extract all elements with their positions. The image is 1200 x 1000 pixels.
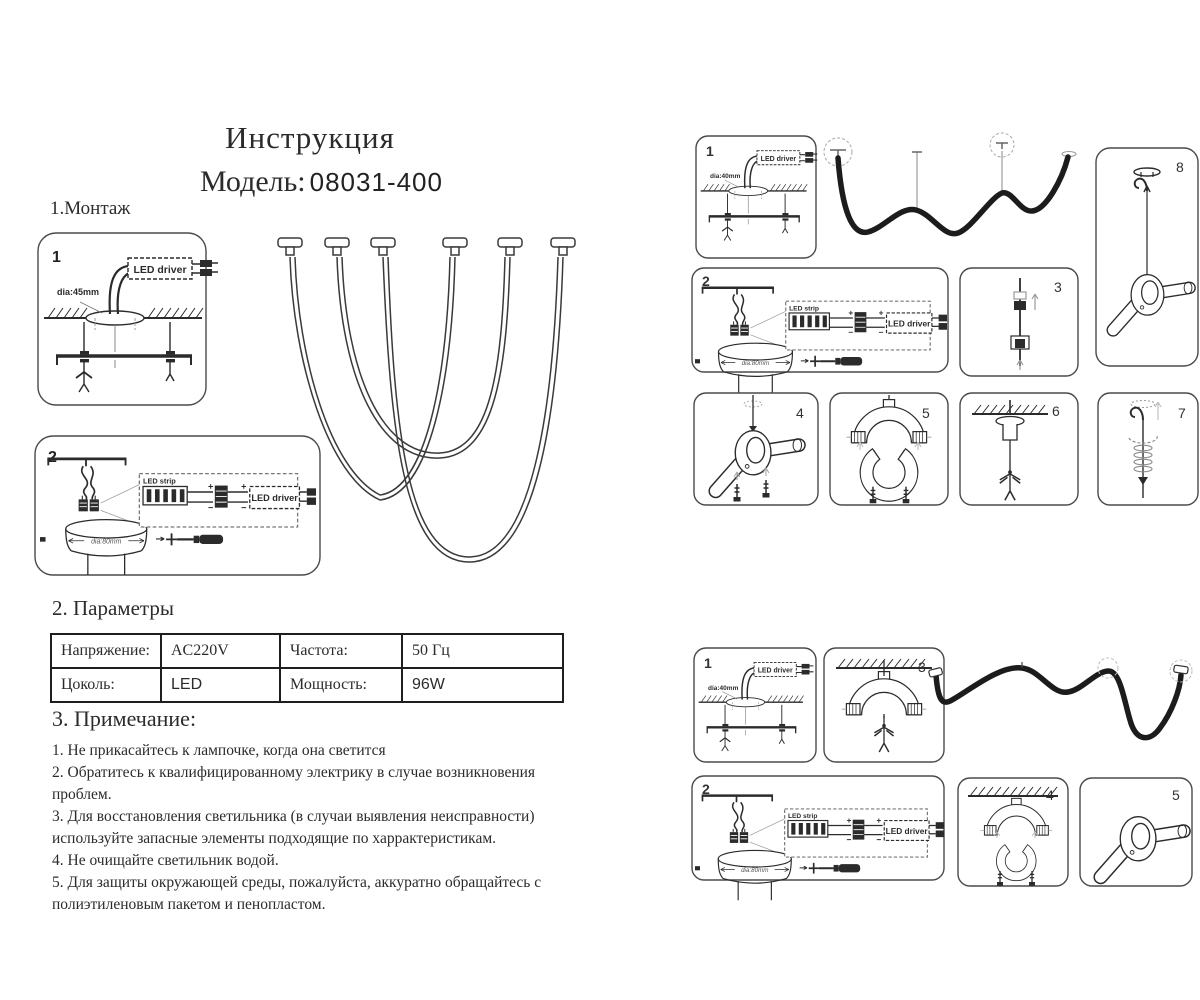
- tube-u3-inner: [388, 257, 558, 557]
- wave-pendant-bottom: [928, 658, 1192, 738]
- panel-left-2: 2: [35, 436, 320, 575]
- panel-bottom-4: 4: [958, 778, 1068, 886]
- wave-tube: [838, 157, 1068, 234]
- dia-40-label: dia:40mm: [710, 173, 741, 180]
- panel-number: 1: [704, 655, 712, 671]
- wave-tube: [936, 668, 1181, 738]
- panel-number: 8: [1176, 159, 1184, 175]
- panel-number: 5: [922, 405, 930, 421]
- panel-bottom-2: 2: [692, 776, 944, 900]
- wave-pendant-top: [824, 133, 1076, 234]
- panel-right-8: 8: [1096, 148, 1198, 366]
- panel-right-6: 6: [960, 393, 1078, 505]
- diagrams-canvas: LED driver: [0, 0, 1200, 1000]
- panel-right-5: 5: [830, 393, 948, 505]
- panel-right-1: 1 dia:40mm: [696, 136, 817, 258]
- panel-right-2: 2: [692, 268, 948, 394]
- dia-40-label: dia:40mm: [708, 685, 739, 692]
- panel-number: 7: [1178, 405, 1186, 421]
- panel-right-4: 4: [694, 393, 818, 505]
- tube-u2-inner: [342, 257, 505, 453]
- panel-number: 4: [796, 405, 804, 421]
- panel-right-3: 3: [960, 268, 1078, 376]
- panel-bottom-5: 5: [1080, 778, 1192, 886]
- ceiling-cups: [278, 238, 575, 255]
- dia-45-label: dia:45mm: [57, 287, 99, 297]
- tube-u2: [337, 257, 510, 458]
- pendant-product-drawing: [278, 238, 575, 562]
- panel-number: 1: [52, 249, 61, 266]
- panel-number: 3: [1054, 279, 1062, 295]
- panel-bottom-1: 1 dia:40mm: [694, 648, 816, 762]
- panel-right-7: 7: [1098, 393, 1198, 505]
- panel-number: 6: [1052, 403, 1060, 419]
- panel-number: 5: [1172, 787, 1180, 803]
- panel-number: 1: [706, 143, 714, 159]
- instruction-page: Инструкция Модель: 08031-400 1.Монтаж 2.…: [0, 0, 1200, 1000]
- tube-u3: [383, 257, 563, 562]
- panel-bottom-3: 3: [824, 648, 944, 762]
- panel-left-1: 1 dia:45mm: [38, 233, 218, 405]
